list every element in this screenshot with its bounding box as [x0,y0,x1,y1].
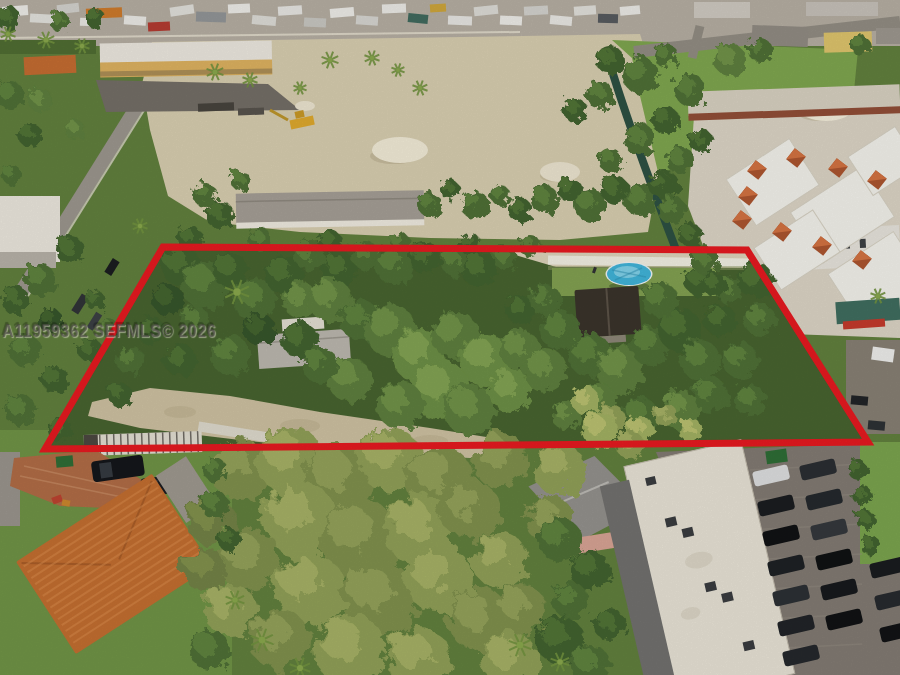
aerial-photo: A11959362 SEFMLS© 2026 [0,0,900,675]
mls-watermark: A11959362 SEFMLS© 2026 [2,321,216,341]
